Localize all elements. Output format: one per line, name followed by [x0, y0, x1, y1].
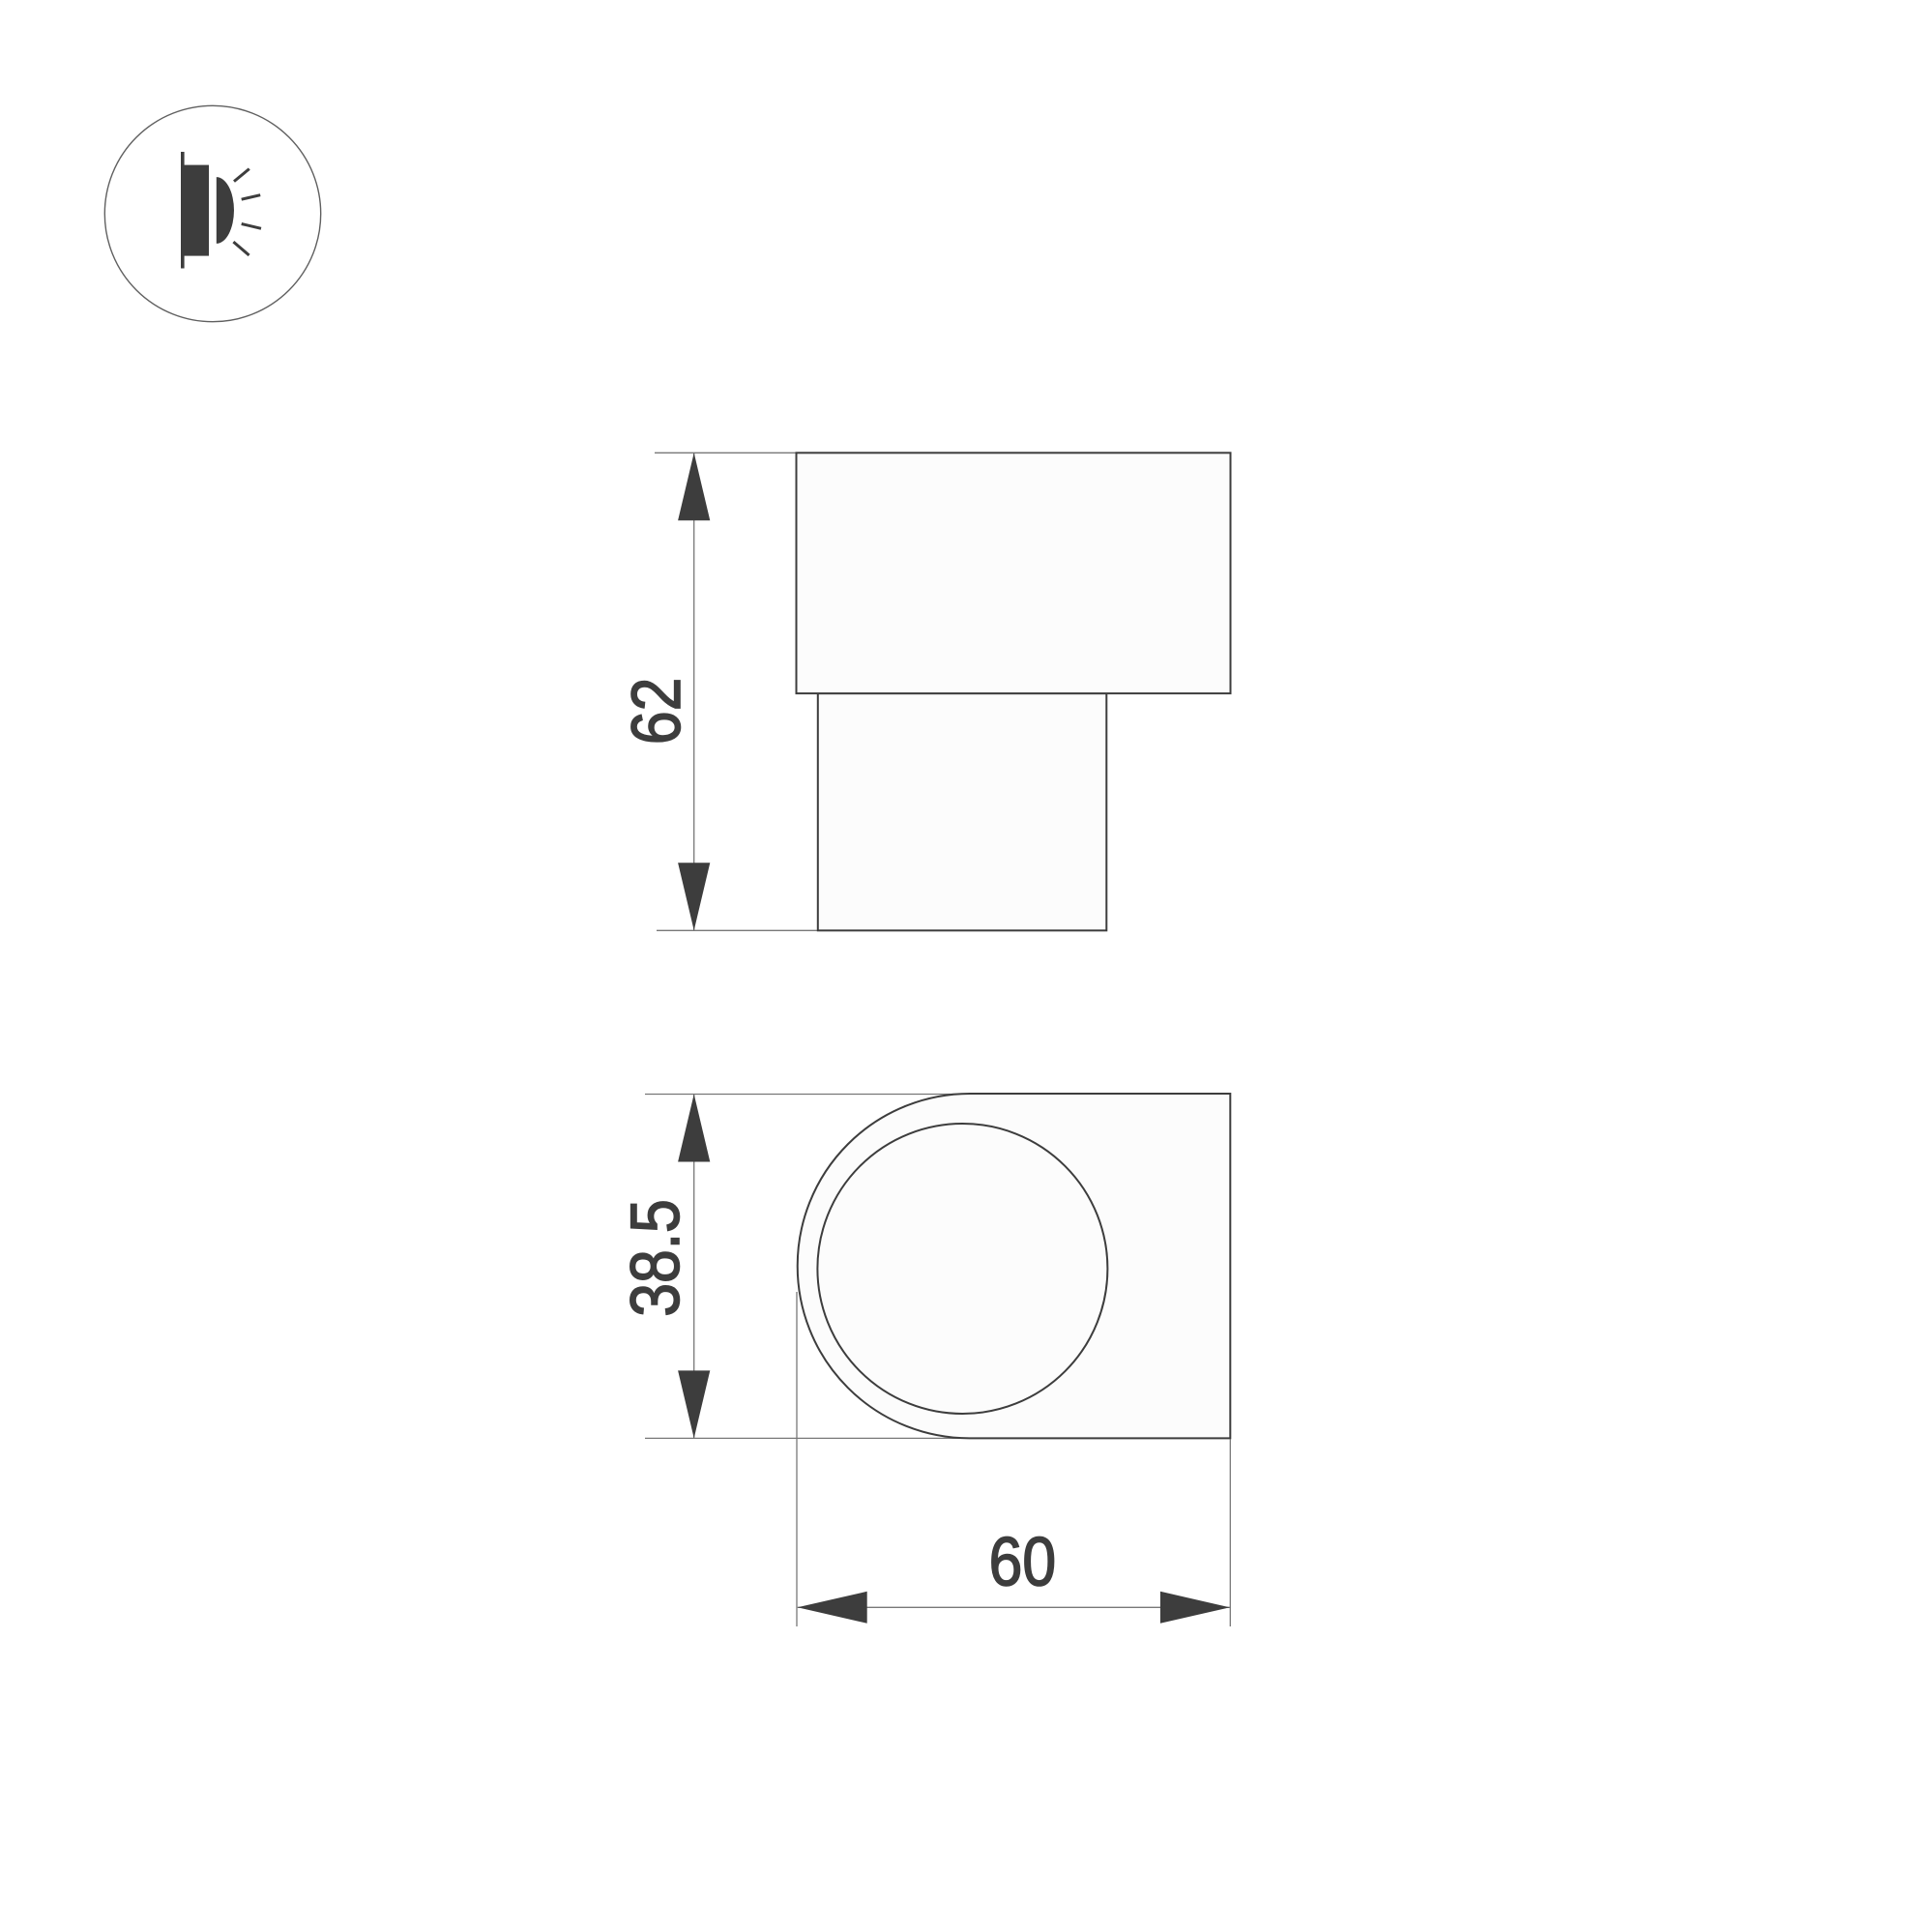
- svg-text:62: 62: [618, 678, 695, 745]
- svg-text:38.5: 38.5: [617, 1199, 694, 1317]
- svg-text:60: 60: [989, 1524, 1056, 1601]
